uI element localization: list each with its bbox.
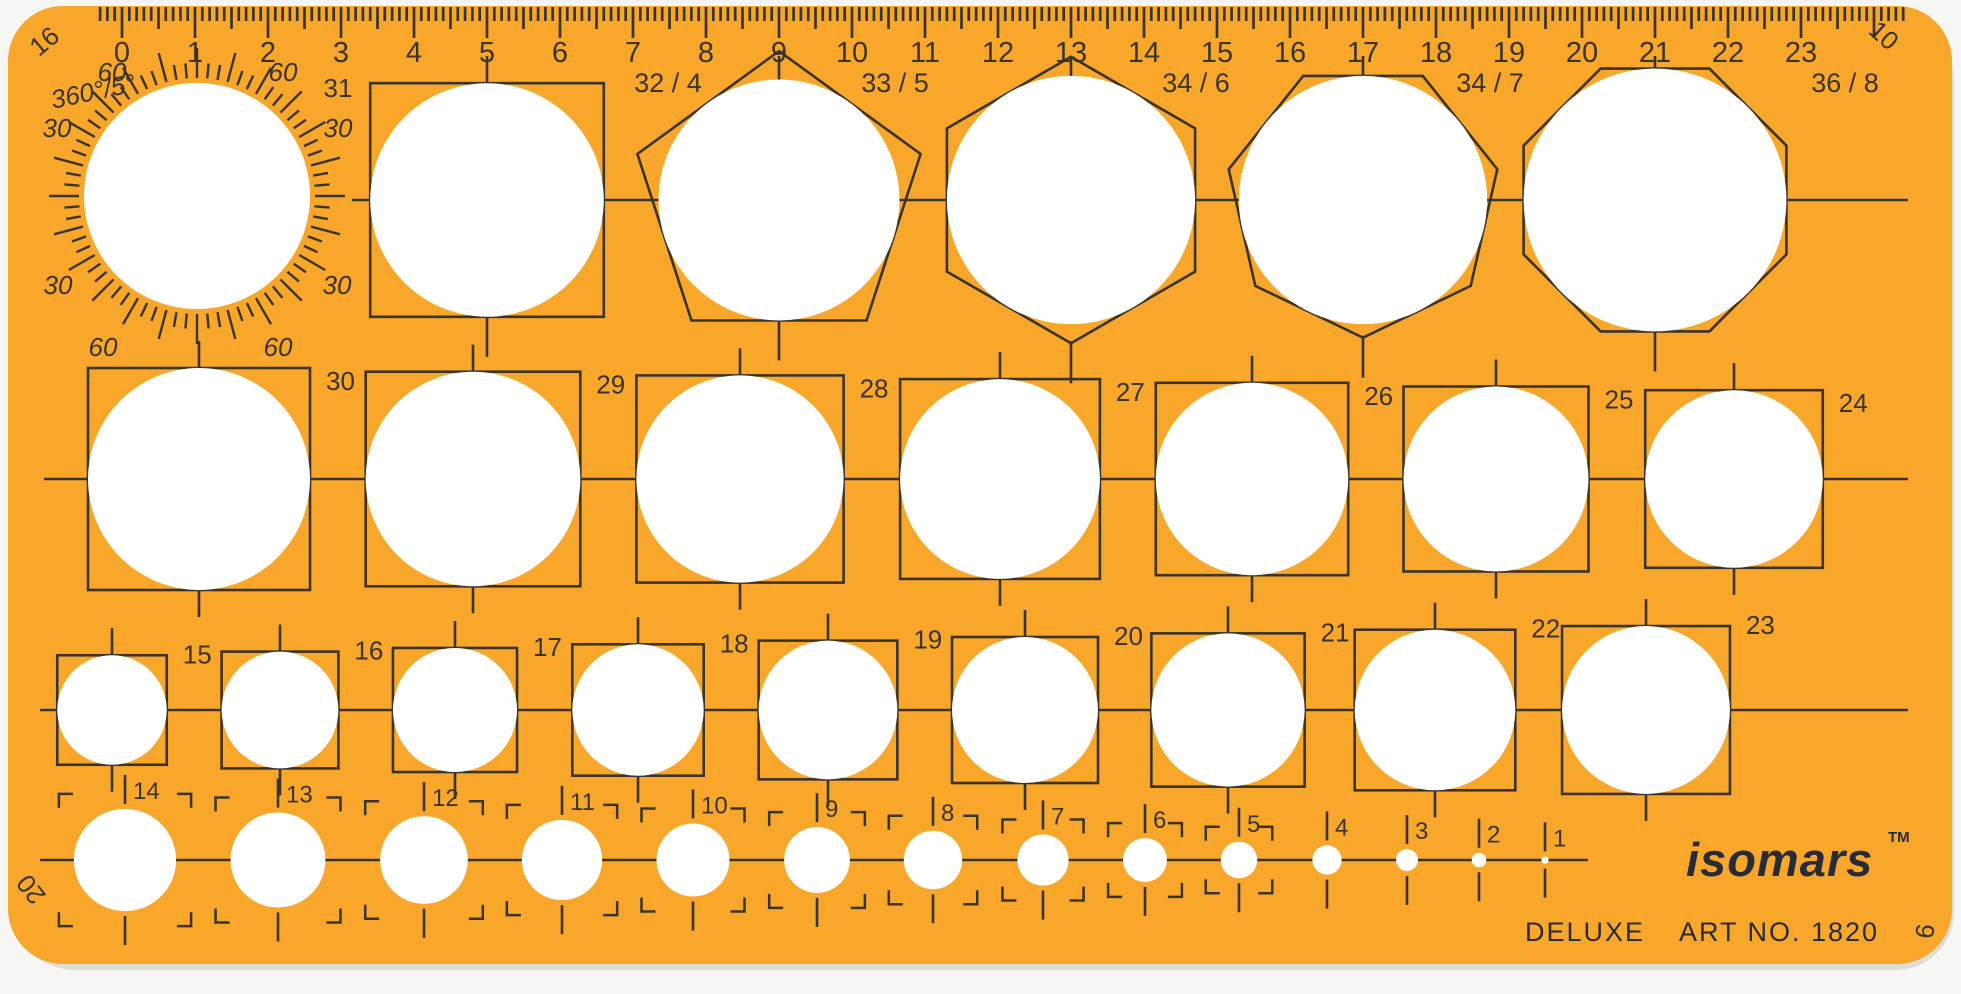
protractor-tick [65,184,80,185]
circle-diameter-label: 28 [860,373,889,403]
circle-cutout [231,813,326,908]
ruler-number: 22 [1712,37,1744,69]
circle-diameter-label: 10 [701,793,728,820]
protractor-degree-label: 30 [43,113,72,143]
circle-cutout [952,637,1098,783]
shape-size-label: 33 / 5 [861,68,929,98]
protractor-tick [185,64,186,79]
ruler-number: 1 [187,37,203,69]
protractor-degree-label: 60 [89,332,118,362]
circle-cutout [1645,390,1823,568]
circle-cutout [759,641,898,780]
circle-diameter-label: 5 [1247,811,1260,838]
circle-cutout [1355,630,1516,791]
circle-cutout [222,652,339,769]
circle-cutout [1472,853,1487,868]
brand-trademark-mark: TM [1888,829,1910,846]
circle-diameter-label: 23 [1746,610,1775,640]
circle-diameter-label: 12 [432,785,459,812]
circle-cutout [1541,856,1548,863]
circle-diameter-label: 3 [1415,818,1428,845]
shape-size-label: 34 / 7 [1456,68,1524,98]
protractor-tick [207,64,208,79]
circle-diameter-label: 22 [1531,614,1560,644]
ruler-number: 15 [1201,37,1233,69]
circle-cutout [380,816,468,904]
protractor-degree-label: 30 [44,270,73,300]
circle-diameter-label: 13 [286,782,313,809]
circle-cutout [1396,849,1418,871]
ruler-number: 14 [1128,37,1160,69]
circle-cutout [1524,69,1787,332]
circle-cutout [370,83,604,317]
circle-cutout [636,375,843,582]
circle-cutout [74,809,176,911]
circle-cutout [904,831,962,889]
circle-diameter-label: 6 [1153,807,1166,834]
circle-cutout [393,648,517,772]
protractor-degree-label: 60 [98,57,127,87]
protractor-circle-cutout [84,83,310,309]
circle-diameter-label: 16 [354,636,383,666]
circle-diameter-label: 24 [1839,388,1868,418]
circle-diameter-label: 2 [1487,822,1500,849]
shape-size-label: 36 / 8 [1811,68,1879,98]
ruler-number: 11 [910,37,940,69]
circle-diameter-label: 11 [570,789,595,816]
protractor-tick [315,206,330,207]
art-number-label: ART NO. 1820 [1679,917,1879,947]
circle-cutout [900,379,1100,579]
circle-diameter-label: 17 [533,632,562,662]
circle-cutout [947,76,1195,324]
circle-cutout [57,655,167,765]
circle-cutout [1312,845,1341,874]
ruler-number: 16 [1274,37,1306,69]
circle-cutout [1156,383,1348,575]
circle-diameter-label: 1 [1553,825,1566,852]
circle-diameter-label: 25 [1605,385,1634,415]
circle-cutout [659,80,900,321]
circle-cutout [522,820,602,900]
protractor-degree-label: 60 [264,332,293,362]
protractor-circle-label: 31 [324,73,353,103]
ruler-number: 6 [552,37,568,69]
circle-diameter-label: 4 [1335,814,1348,841]
circle-diameter-label: 7 [1051,803,1064,830]
circle-cutout [657,824,730,897]
circle-diameter-label: 27 [1116,377,1145,407]
ruler-number: 23 [1785,37,1817,69]
circle-cutout [88,368,310,590]
edition-label: DELUXE [1525,917,1645,947]
circle-cutout [366,372,581,587]
protractor-tick [185,314,186,329]
ruler-number: 19 [1493,37,1525,69]
circle-cutout [1123,838,1167,882]
ruler-number: 20 [1566,37,1598,69]
circle-diameter-label: 15 [183,639,212,669]
circle-cutout [1239,76,1487,324]
photo-stage: 01234567891011121314151617181920212223 3… [0,0,1961,994]
circle-diameter-label: 18 [720,628,749,658]
circle-diameter-label: 14 [133,778,160,805]
protractor-degree-label: 30 [324,113,353,143]
circle-cutout [1404,387,1589,572]
circle-diameter-label: 8 [941,800,954,827]
circle-cutout [1221,842,1258,879]
ruler-number: 4 [406,37,422,69]
circle-cutout [784,827,850,893]
circle-diameter-label: 19 [913,625,942,655]
circle-cutout [1017,834,1068,885]
ruler-number: 8 [698,37,714,69]
protractor-degree-label: 60 [269,57,298,87]
circle-diameter-label: 30 [326,366,355,396]
protractor-tick [207,314,208,329]
circle-diameter-label: 21 [1321,617,1350,647]
circle-diameter-label: 9 [825,796,838,823]
circle-diameter-label: 29 [596,370,625,400]
protractor-tick [315,184,330,185]
circle-cutout [572,644,703,775]
circle-cutout [1562,626,1730,794]
ruler-number: 7 [625,37,641,69]
circle-diameter-label: 20 [1114,621,1143,651]
shape-size-label: 34 / 6 [1162,68,1230,98]
shape-size-label: 32 / 4 [634,68,702,98]
protractor-degree-label: 30 [323,270,352,300]
brand-logo: isomars [1686,833,1873,886]
ruler-number: 3 [333,37,349,69]
ruler-number: 12 [982,37,1014,69]
ruler-number: 18 [1420,37,1452,69]
template-photo: 01234567891011121314151617181920212223 3… [0,0,1961,994]
circle-cutout [1151,633,1304,786]
protractor-tick [65,206,80,207]
circle-diameter-label: 26 [1364,381,1393,411]
ruler-number: 10 [836,37,868,69]
